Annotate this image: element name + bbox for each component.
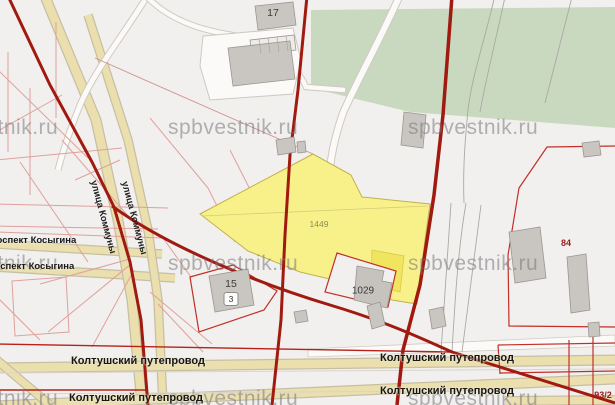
map-drawing [0, 0, 615, 405]
building-label-15: 15 [225, 278, 237, 290]
street-label-koltushsky-1: Колтушский путепровод [71, 355, 205, 367]
building-small-3 [294, 310, 308, 323]
parcel-label-1449: 1449 [310, 219, 329, 229]
building-center [401, 112, 426, 148]
map-canvas[interactable]: spbvestnik.ru spbvestnik.ru spbvestnik.r… [0, 0, 615, 405]
building-garage-main [228, 41, 295, 86]
street-label-koltushsky-3: Колтушский путепровод [69, 392, 203, 404]
street-label-kosygina-1: проспект Косыгина [0, 235, 76, 246]
street-label-koltushsky-2: Колтушский путепровод [380, 352, 514, 364]
building-label-3-badge: 3 [224, 292, 239, 306]
building-small-2 [297, 141, 306, 153]
parcel-label-1029: 1029 [352, 286, 374, 297]
building-small-5 [429, 307, 446, 329]
building-label-17: 17 [267, 7, 279, 19]
building-small-1 [276, 137, 296, 155]
parcel-label-84: 84 [561, 238, 571, 248]
parcel-label-93-2: 93/2 [594, 390, 612, 400]
street-label-koltushsky-4: Колтушский путепровод [380, 385, 514, 397]
building-right-large [509, 227, 546, 283]
street-label-kosygina-2: проспект Косыгина [0, 261, 74, 272]
building-small-7 [582, 141, 601, 157]
building-right-small [567, 254, 590, 313]
building-small-6 [588, 322, 600, 337]
